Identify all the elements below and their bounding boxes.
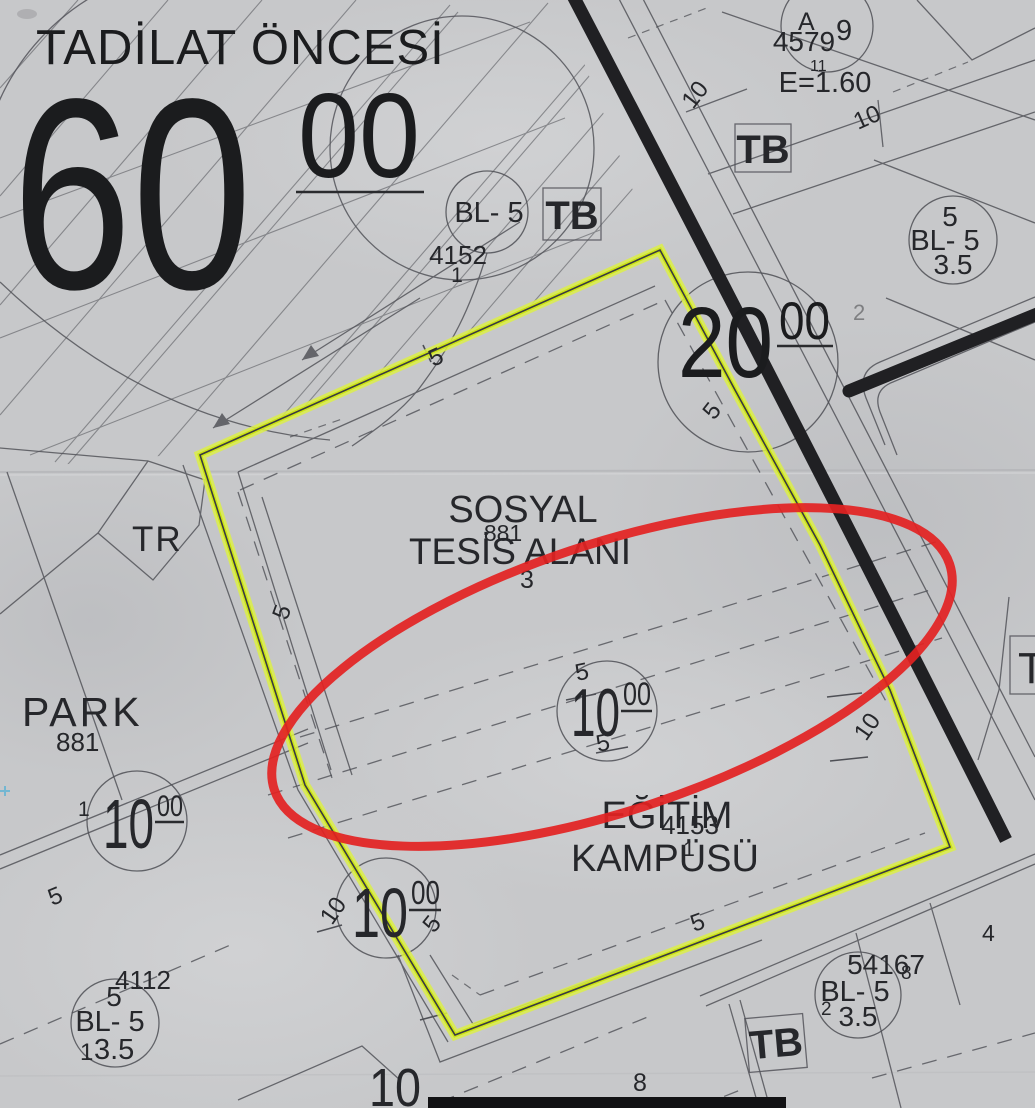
parcel-sub-2-faint: 2	[853, 300, 865, 325]
parcel-4112: 4112	[115, 965, 171, 995]
road-width-10-bottom-sup: 00	[411, 874, 440, 911]
area-tr: TR	[132, 520, 183, 559]
parcel-sub-1-egitim: 1	[683, 838, 695, 861]
parcel-54167-sub8: 8	[901, 963, 912, 984]
bottom-black-bar	[428, 1097, 786, 1108]
road-width-20: 20	[678, 287, 773, 399]
emsal-value: E=1.60	[779, 67, 872, 99]
road-width-60: 60	[12, 42, 252, 346]
tb-label-left: TB	[545, 194, 598, 238]
bl5-bottomright-height: 3.5	[839, 1001, 878, 1032]
bl5-bottomright-sub2: 2	[821, 999, 832, 1020]
parcel-4152-sub: 1	[451, 264, 463, 287]
road-width-10-center-sup: 00	[623, 676, 651, 712]
zoning-map-scan: TADİLAT ÖNCESİ 60 00 20 00 10 00 10 00 1…	[0, 0, 1035, 1108]
road-width-10-left: 10	[103, 785, 154, 863]
tb-label-bottom: TB	[748, 1020, 805, 1068]
road-width-10-left-sup: 00	[157, 790, 183, 823]
scan-smudge	[17, 9, 37, 19]
area-egitim-line2: KAMPÜSÜ	[571, 838, 759, 880]
block-bl5-top: BL- 5	[454, 197, 523, 229]
parcel-4153: 4153	[661, 810, 719, 840]
parcel-4579: 4579	[773, 26, 835, 57]
parcel-4579-sub9: 9	[836, 15, 852, 47]
road-width-10-bottom: 10	[352, 874, 408, 952]
dim-10-bottom-edge: 10	[369, 1058, 421, 1108]
parcel-sub-1-left: 1	[78, 798, 90, 821]
area-sosyal-line1: SOSYAL	[448, 489, 597, 531]
road-width-20-sup: 00	[779, 292, 830, 351]
parcel-881-park: 881	[56, 727, 99, 757]
bl5-bottomleft-height: 3.5	[94, 1034, 134, 1066]
bl5-bottomleft-sub: 1	[80, 1039, 93, 1066]
dim-8-bottom-edge: 8	[633, 1069, 647, 1097]
map-canvas: TADİLAT ÖNCESİ 60 00 20 00 10 00 10 00 1…	[0, 0, 1035, 1108]
bl5-right-height: 3.5	[934, 249, 973, 280]
tb-label-top: TB	[736, 128, 789, 172]
road-width-60-sup: 00	[298, 69, 420, 203]
dim-4-right-edge: 4	[982, 920, 995, 946]
t-label-edge: T	[1018, 644, 1035, 693]
